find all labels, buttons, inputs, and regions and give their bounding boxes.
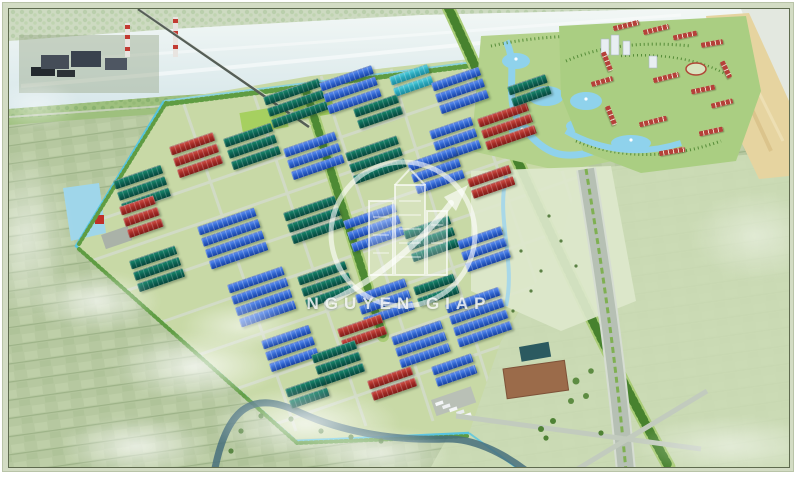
image-frame: NGUYEN GIAP [2,2,794,472]
watermark-text: NGUYEN GIAP [9,294,789,314]
watermark: NGUYEN GIAP [9,9,789,467]
masterplan-rendering: NGUYEN GIAP [8,8,790,468]
watermark-logo [9,9,789,467]
